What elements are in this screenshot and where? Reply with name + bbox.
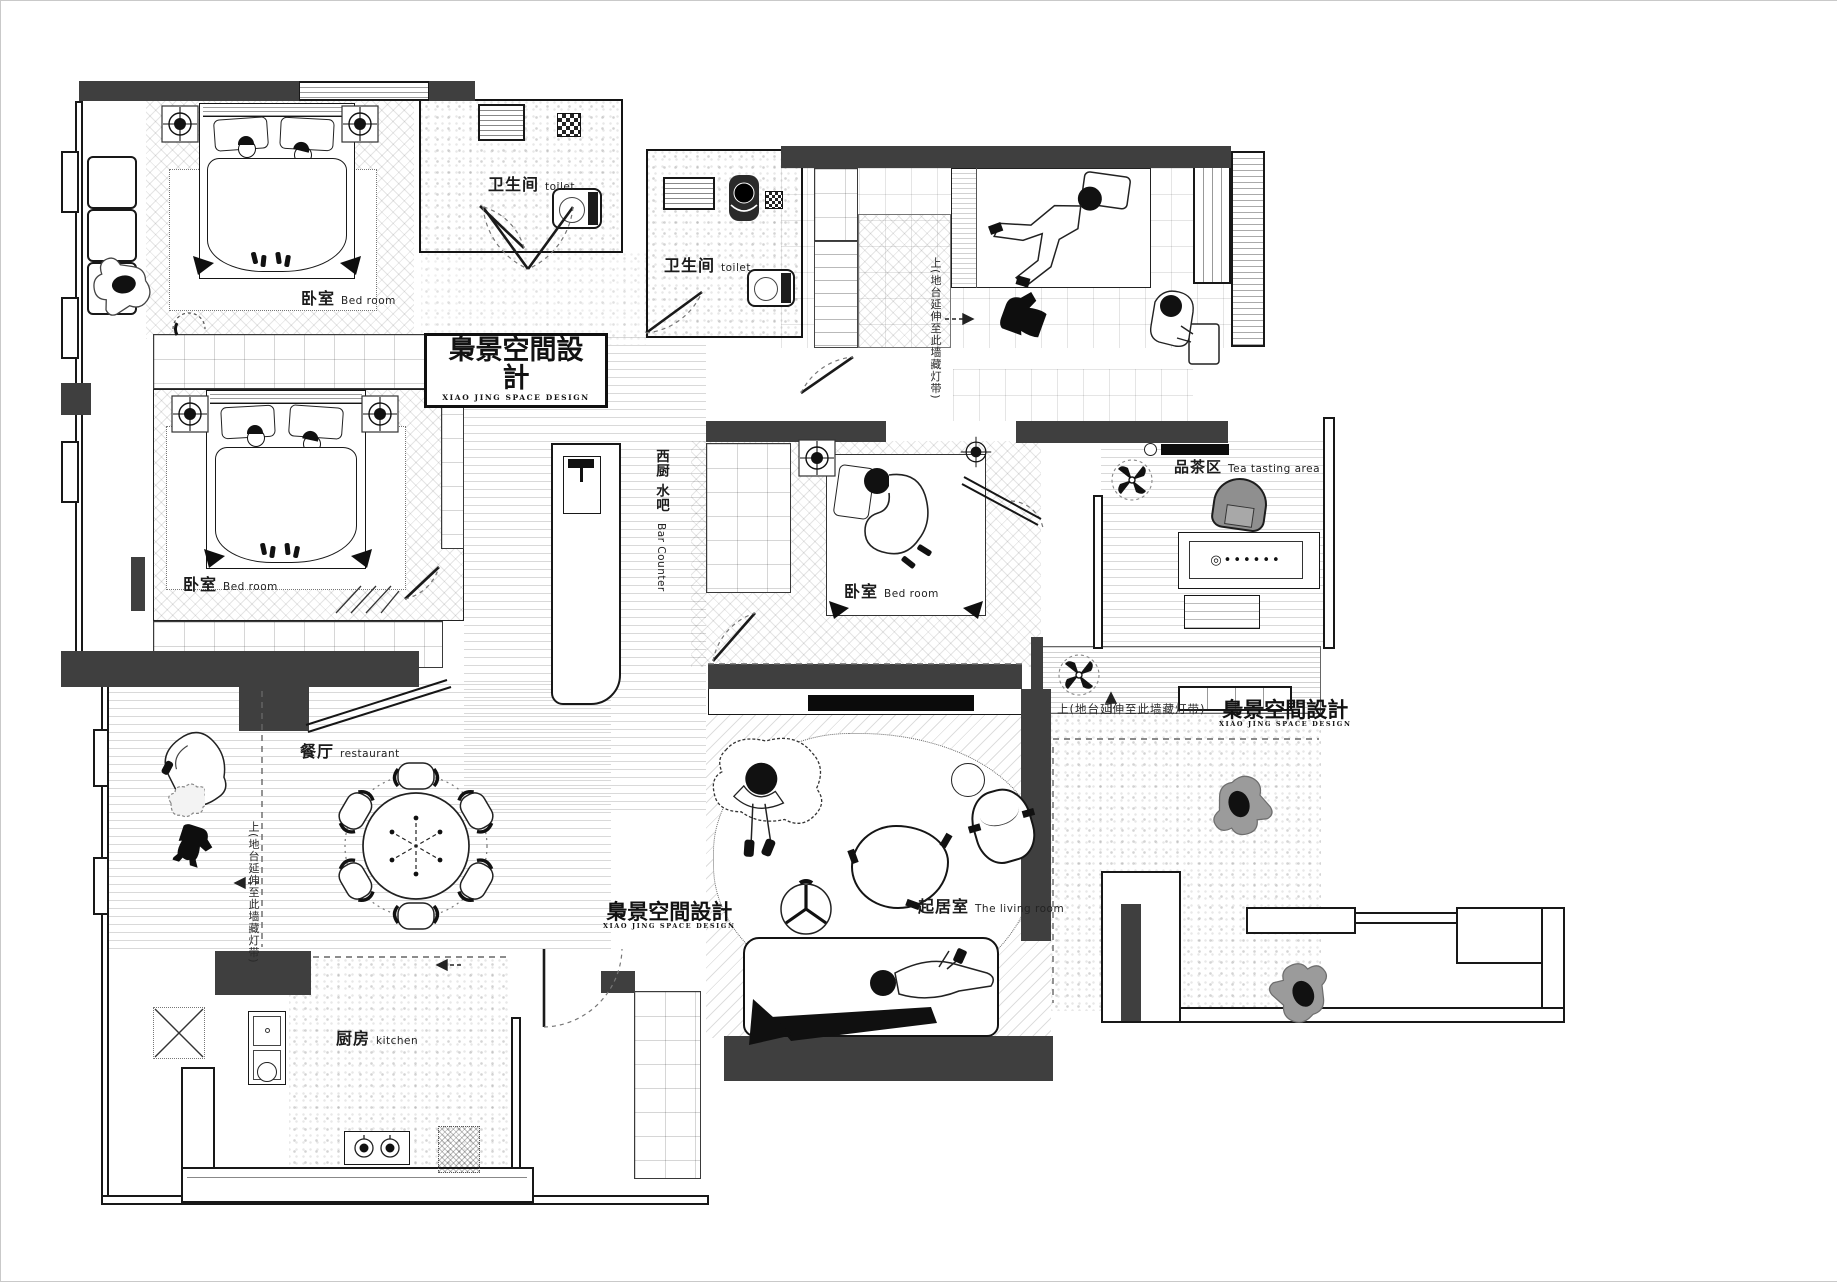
bed-corner-marks [193,256,983,619]
brand-name-en: XIAO JING SPACE DESIGN [603,923,735,930]
room-label-cn: 品茶区 [1174,458,1222,476]
room-label-cn: 西厨 水吧 [653,449,669,513]
door-arc-small [173,313,205,335]
steps-lines [336,586,399,613]
room-label-bedroom-top: 卧室Bed room [301,285,396,309]
brand-watermark: 梟景空間設計 XIAO JING SPACE DESIGN [603,901,735,930]
room-label-bedroom-small: 卧室Bed room [844,578,939,602]
room-label-en: Bed room [341,295,396,307]
platform-annotation: 上(地台延伸至此墙藏灯带) [1057,701,1205,717]
room-label-en: toilet [721,262,751,274]
room-label-cn: 卧室 [844,582,878,601]
room-label-dining: 餐厅restaurant [300,738,400,762]
sofa-chaise-shadow [749,999,937,1045]
brand-name-en: XIAO JING SPACE DESIGN [437,394,595,402]
room-label-cn: 起居室 [918,897,969,916]
room-label-en: Bed room [223,581,278,593]
brand-watermark: 梟景空間設計 XIAO JING SPACE DESIGN [1219,699,1351,728]
room-label-cn: 卧室 [183,575,217,594]
room-label-cn: 卫生间 [488,175,539,194]
brand-name-cn: 梟景空間設計 [1219,699,1351,721]
room-label-cn: 餐厅 [300,742,334,761]
room-label-kitchen: 厨房kitchen [336,1025,418,1049]
platform-annotation: 上(地台延伸至此墙藏灯带) [245,821,261,941]
room-label-en: Tea tasting area [1228,463,1320,475]
shaft-x [155,1009,203,1057]
brand-name-cn: 梟景空間設計 [603,901,735,923]
room-label-toilet-inner: 卫生间toilet [664,252,751,276]
room-label-cn: 卧室 [301,289,335,308]
brand-name-en: XIAO JING SPACE DESIGN [1219,721,1351,728]
brand-name-cn: 梟景空間設計 [437,337,595,394]
floor-plan: ◎•••••• [0,0,1837,1282]
room-label-bedroom-mid: 卧室Bed room [183,571,278,595]
room-label-toilet-top: 卫生间toilet [488,171,575,195]
plan-lines-overlay [1,1,1837,1281]
room-label-cn: 厨房 [336,1029,370,1048]
room-label-en: Bar Counter [655,523,667,592]
room-label-living: 起居室The living room [918,893,1064,917]
room-label-cn: 卫生间 [664,256,715,275]
slanted-walls [306,477,1041,732]
room-label-en: Bed room [884,588,939,600]
room-label-en: restaurant [340,748,400,760]
room-label-en: toilet [545,181,575,193]
room-label-tea-area: 品茶区Tea tasting area [1174,456,1320,477]
platform-annotation: 上(地台延伸至此墙藏灯带) [927,257,943,377]
direction-arrows [235,314,1116,970]
room-label-bar-counter: 西厨 水吧Bar Counter [651,449,671,609]
room-label-en: kitchen [376,1035,418,1047]
brand-watermark: 梟景空間設計 XIAO JING SPACE DESIGN [424,333,608,408]
room-label-en: The living room [975,903,1064,915]
